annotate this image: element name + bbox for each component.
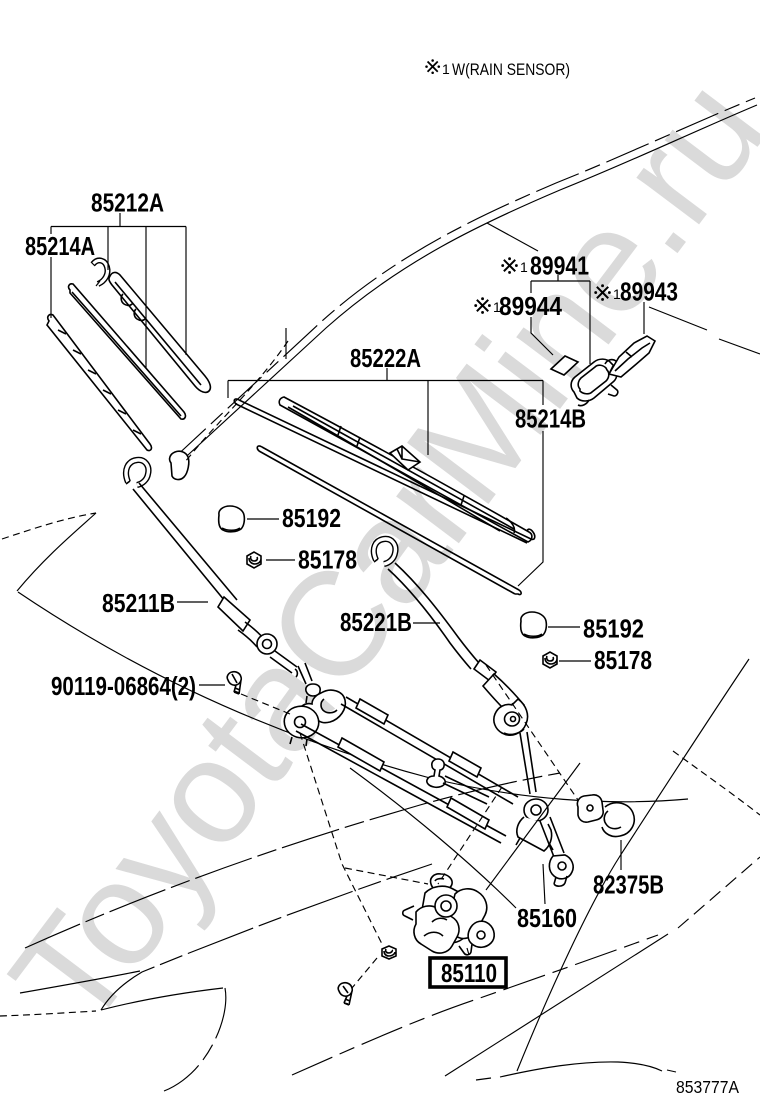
svg-text:85211B: 85211B: [102, 588, 175, 618]
svg-text:1: 1: [442, 61, 450, 77]
svg-text:89943: 89943: [620, 277, 678, 307]
svg-text:853777A: 853777A: [676, 1077, 739, 1097]
svg-text:85214A: 85214A: [25, 231, 95, 261]
svg-text:85192: 85192: [583, 614, 644, 644]
svg-text:85110: 85110: [441, 958, 497, 988]
svg-text:90119-06864(2): 90119-06864(2): [51, 671, 196, 701]
svg-text:89941: 89941: [530, 251, 589, 281]
svg-text:85178: 85178: [594, 645, 652, 675]
svg-text:85214B: 85214B: [515, 404, 586, 434]
svg-text:85212A: 85212A: [91, 188, 164, 218]
svg-text:85222A: 85222A: [350, 343, 421, 373]
svg-text:89944: 89944: [499, 291, 562, 321]
svg-text:85192: 85192: [282, 503, 341, 533]
svg-text:85178: 85178: [298, 545, 357, 575]
svg-text:1: 1: [520, 259, 528, 275]
svg-text:85221B: 85221B: [340, 607, 412, 637]
svg-text:85160: 85160: [517, 903, 577, 933]
svg-text:W(RAIN SENSOR): W(RAIN SENSOR): [452, 60, 570, 79]
svg-text:82375B: 82375B: [593, 870, 664, 900]
